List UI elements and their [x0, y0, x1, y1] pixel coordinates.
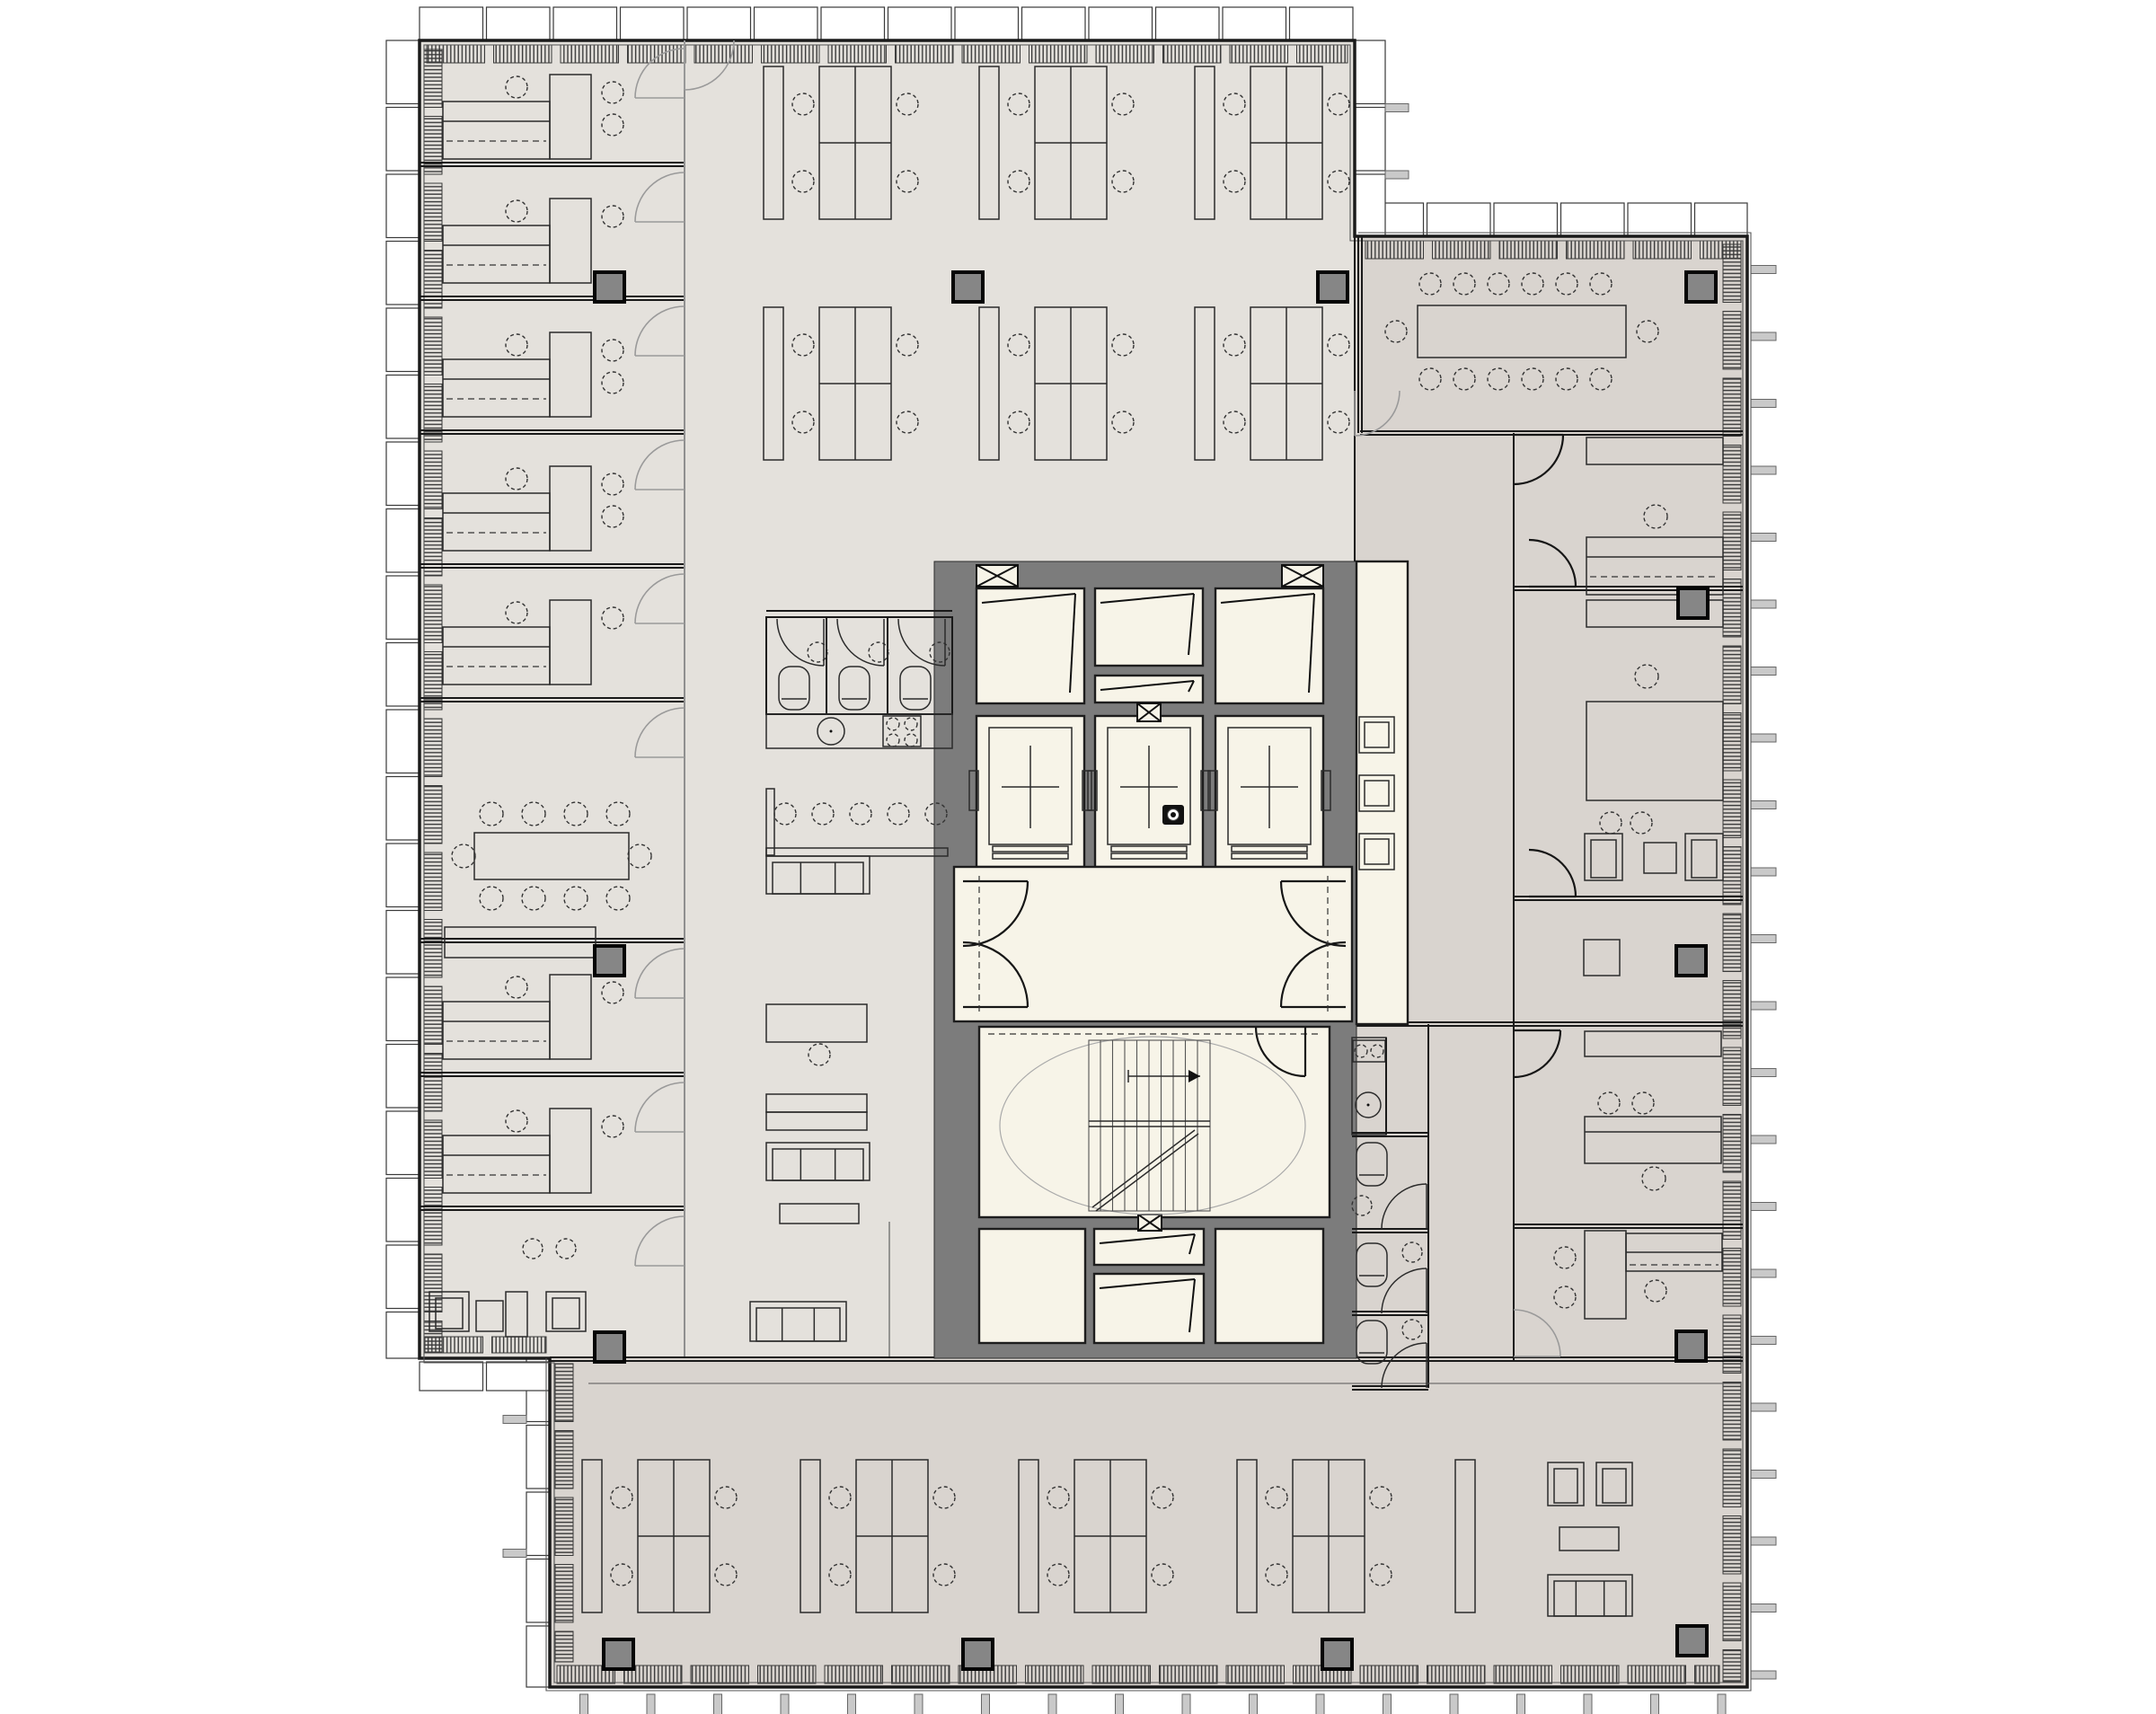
convector-west [424, 1188, 442, 1246]
convector-west [424, 585, 442, 643]
fins-south [1182, 1694, 1190, 1714]
tea-sink-drain [1367, 1104, 1370, 1107]
convector-east [1723, 1583, 1741, 1641]
convector-east [1723, 579, 1741, 638]
core-side-room [979, 1229, 1085, 1343]
structural-column [1676, 1331, 1706, 1361]
convector-north [1297, 45, 1348, 63]
convector-west [424, 986, 442, 1045]
convector-west [424, 183, 442, 242]
convector-south [892, 1665, 950, 1683]
fins-east [1751, 801, 1776, 809]
fins-east [1751, 1269, 1776, 1277]
convector-southwest [555, 1631, 573, 1662]
floor-plan-canvas [0, 0, 2156, 1714]
convector-west [424, 786, 442, 844]
convector-north [561, 45, 619, 63]
structural-column [1677, 1626, 1707, 1656]
structural-column [1322, 1639, 1352, 1669]
window-modules-north [420, 7, 483, 40]
structural-column [953, 272, 983, 302]
fins-southwest [503, 1550, 526, 1558]
convector-south [1226, 1665, 1285, 1683]
convector-south [825, 1665, 883, 1683]
convector-west [424, 317, 442, 375]
fins-south [1250, 1694, 1258, 1714]
window-modules-west [386, 174, 420, 238]
fins-upper-east [1385, 104, 1409, 112]
window-modules-north [1022, 7, 1086, 40]
convector-east [1723, 512, 1741, 570]
convector-east [1723, 1650, 1741, 1683]
window-modules-west [386, 1045, 420, 1109]
convector-north [1096, 45, 1154, 63]
window-modules-west [386, 1179, 420, 1242]
window-modules-northeast [1561, 203, 1625, 236]
service-core [934, 561, 1408, 1358]
window-modules-west [386, 1245, 420, 1309]
convector-east [1723, 914, 1741, 972]
convector-east [1723, 713, 1741, 772]
kitchen-sink-drain [830, 730, 833, 733]
convector-east [1723, 1315, 1741, 1374]
fins-east [1751, 1604, 1776, 1612]
structural-column [1318, 272, 1347, 302]
window-modules-north [553, 7, 617, 40]
fins-east [1751, 466, 1776, 474]
convector-east [1723, 244, 1741, 303]
fins-south [647, 1694, 655, 1714]
fins-east [1751, 1537, 1776, 1545]
fins-south [1116, 1694, 1124, 1714]
convector-east [1723, 1047, 1741, 1106]
structural-column [595, 946, 624, 976]
window-modules-north [1290, 7, 1354, 40]
convector-north [962, 45, 1021, 63]
window-modules-west [386, 242, 420, 305]
convector-southwest [555, 1364, 573, 1422]
convector-east [1723, 981, 1741, 1039]
window-modules-north [888, 7, 952, 40]
window-modules-north [1089, 7, 1153, 40]
window-modules-west [386, 977, 420, 1041]
convector-west [424, 1120, 442, 1179]
fins-south [915, 1694, 923, 1714]
window-modules-north [755, 7, 818, 40]
convector-north [1163, 45, 1222, 63]
window-modules-northeast [1427, 203, 1491, 236]
convector-south [1561, 1665, 1620, 1683]
fins-east [1751, 1002, 1776, 1010]
stair-room [979, 1027, 1330, 1217]
convector-east [1723, 1449, 1741, 1507]
fins-south [1383, 1694, 1392, 1714]
fins-east [1751, 1337, 1776, 1345]
fins-east [1751, 1069, 1776, 1077]
window-modules-north [487, 7, 551, 40]
convector-east [1723, 1383, 1741, 1441]
convector-west [424, 920, 442, 978]
convector-north [628, 45, 686, 63]
convector-northeast [1433, 241, 1491, 259]
fins-south [1584, 1694, 1592, 1714]
fins-south [982, 1694, 990, 1714]
fins-south [1450, 1694, 1458, 1714]
fins-south [1651, 1694, 1659, 1714]
convector-south [1026, 1665, 1084, 1683]
convector-east [1723, 1115, 1741, 1173]
fins-east [1751, 935, 1776, 943]
shaft-room [976, 588, 1084, 703]
fins-south [781, 1694, 789, 1714]
structural-column [1686, 272, 1716, 302]
window-modules-northeast [1494, 203, 1558, 236]
fins-east [1751, 1671, 1776, 1679]
convector-east [1723, 446, 1741, 504]
convector-north [828, 45, 887, 63]
convector-southwest [555, 1498, 573, 1556]
convector-leftwing-south [492, 1337, 547, 1353]
convector-east [1723, 1181, 1741, 1240]
convector-east [1723, 312, 1741, 370]
window-modules-upper-east [1355, 40, 1385, 104]
structural-column [1676, 946, 1706, 976]
fins-south [848, 1694, 856, 1714]
convector-northeast [1499, 241, 1558, 259]
window-modules-west [386, 643, 420, 707]
window-modules-west [386, 844, 420, 907]
convector-north [694, 45, 753, 63]
fins-east [1751, 266, 1776, 274]
structural-column [595, 1332, 624, 1362]
convector-east [1723, 646, 1741, 704]
window-modules-south-leftwing [420, 1362, 483, 1391]
convector-northeast [1567, 241, 1625, 259]
elevator-lobby [954, 867, 1352, 1021]
firefighter-lift-icon-dot [1171, 812, 1176, 817]
shaft-room [1095, 588, 1203, 666]
fins-east [1751, 868, 1776, 876]
convector-west [424, 853, 442, 911]
fins-east [1751, 1135, 1776, 1144]
convector-west [424, 49, 442, 108]
convector-west [424, 1254, 442, 1312]
fins-east [1751, 534, 1776, 542]
window-modules-north [621, 7, 685, 40]
shaft-room [1215, 588, 1323, 703]
window-modules-west [386, 1312, 420, 1359]
window-modules-northeast [1695, 203, 1748, 236]
fins-south [714, 1694, 722, 1714]
convector-south [691, 1665, 749, 1683]
core-side-room [1215, 1229, 1323, 1343]
convector-north [1230, 45, 1288, 63]
window-modules-south-leftwing [487, 1362, 551, 1391]
window-modules-west [386, 911, 420, 975]
convector-north [762, 45, 820, 63]
convector-south [1695, 1665, 1720, 1683]
convector-southwest [555, 1431, 573, 1489]
convector-east [1723, 1249, 1741, 1307]
fins-east [1751, 1471, 1776, 1479]
convector-east [1723, 780, 1741, 838]
convector-south [1360, 1665, 1418, 1683]
fins-east [1751, 734, 1776, 742]
window-modules-west [386, 777, 420, 841]
window-modules-west [386, 509, 420, 573]
convector-south [1092, 1665, 1151, 1683]
window-modules-north [1156, 7, 1220, 40]
window-modules-west [386, 442, 420, 506]
window-modules-west [386, 308, 420, 372]
convector-north [494, 45, 552, 63]
fins-south [580, 1694, 588, 1714]
fins-east [1751, 1403, 1776, 1411]
convector-leftwing-south [425, 1337, 483, 1353]
fins-south [1517, 1694, 1525, 1714]
window-modules-north [821, 7, 885, 40]
fins-south [1048, 1694, 1056, 1714]
fins-south [1718, 1694, 1726, 1714]
window-modules-west [386, 576, 420, 640]
fins-southwest [503, 1416, 526, 1424]
convector-south [1628, 1665, 1686, 1683]
convector-south [1427, 1665, 1486, 1683]
fins-east [1751, 667, 1776, 676]
structural-column [963, 1639, 993, 1669]
fins-upper-east [1385, 171, 1409, 179]
fins-east [1751, 400, 1776, 408]
convector-northeast [1633, 241, 1692, 259]
fins-east [1751, 600, 1776, 608]
window-modules-west [386, 108, 420, 172]
convector-east [1723, 378, 1741, 437]
convector-west [424, 451, 442, 509]
convector-southwest [555, 1565, 573, 1623]
convector-northeast [1365, 241, 1424, 259]
convector-north [1029, 45, 1088, 63]
window-modules-west [386, 1111, 420, 1175]
fins-south [1316, 1694, 1324, 1714]
window-modules-upper-east [1355, 108, 1385, 172]
structural-column [1678, 588, 1708, 618]
structural-column [604, 1639, 633, 1669]
window-modules-west [386, 375, 420, 439]
window-modules-west [386, 40, 420, 104]
convector-east [1723, 1516, 1741, 1575]
window-modules-north [955, 7, 1019, 40]
floor-bottom-wing [550, 1358, 1747, 1687]
convector-south [1160, 1665, 1218, 1683]
convector-north [896, 45, 954, 63]
window-modules-northeast [1628, 203, 1692, 236]
window-modules-north [1223, 7, 1286, 40]
window-modules-north [687, 7, 751, 40]
structural-column [595, 272, 624, 302]
window-modules-west [386, 710, 420, 773]
convector-south [1494, 1665, 1552, 1683]
fins-east [1751, 332, 1776, 340]
fins-east [1751, 1203, 1776, 1211]
convector-south [758, 1665, 817, 1683]
window-modules-upper-east [1355, 174, 1385, 236]
convector-west [424, 1054, 442, 1112]
convector-west [424, 719, 442, 777]
